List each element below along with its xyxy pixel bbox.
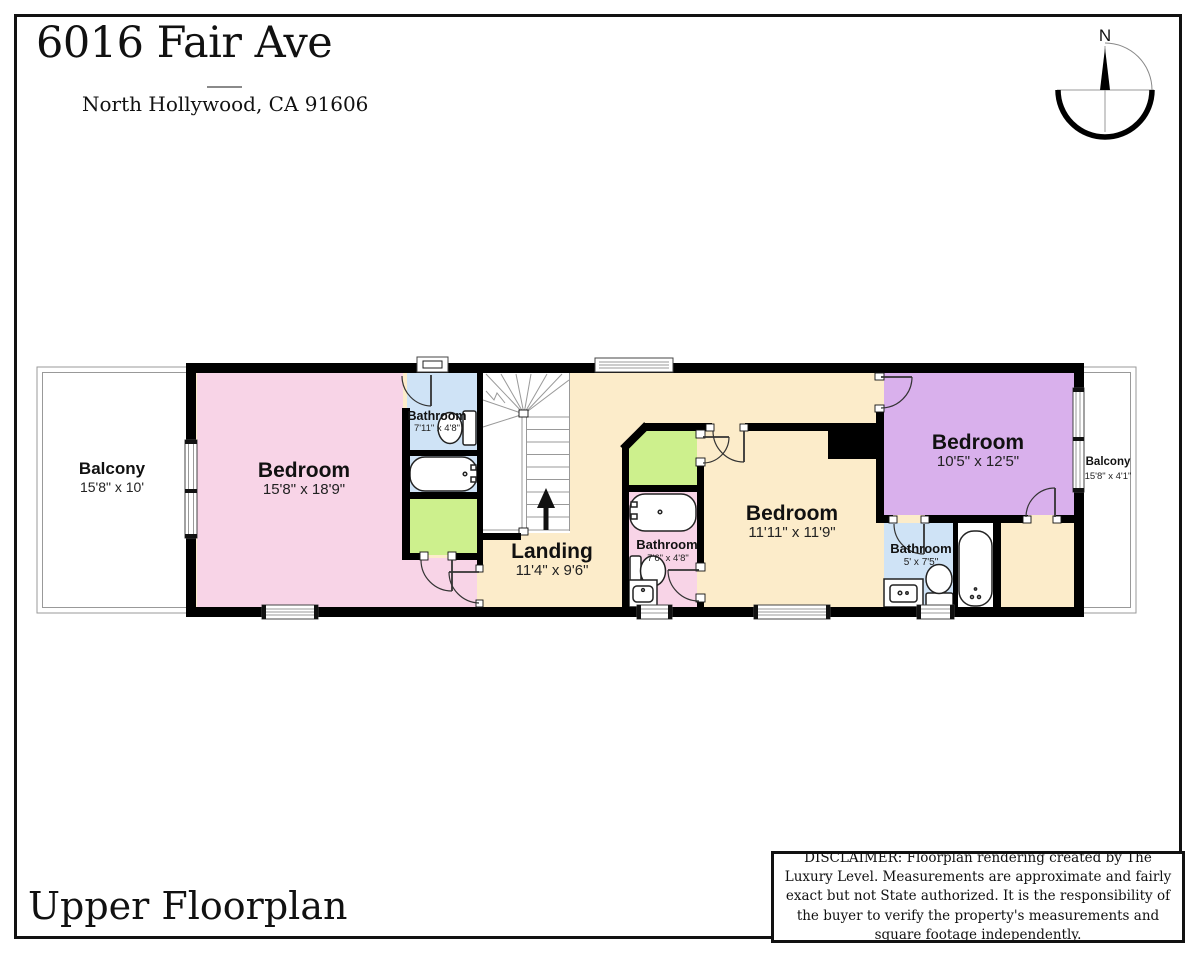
label-balcony-left: Balcony [79, 459, 146, 478]
dims-bathroom-right: 5' x 7'5" [904, 557, 939, 568]
window-bottom-2 [637, 605, 672, 619]
label-bathroom-right: Bathroom [890, 541, 951, 556]
label-bedroom-middle: Bedroom [746, 502, 838, 525]
compass-icon: N [1048, 20, 1163, 142]
vanity-bathroom-right [884, 579, 923, 607]
window-left-wall [185, 440, 197, 538]
sink-bathroom-middle [629, 580, 657, 607]
dims-bathroom-middle: 7'6" x 4'8" [647, 553, 689, 564]
window-top-wide [595, 358, 673, 372]
floorplan-page: 6016 Fair Ave North Hollywood, CA 91606 … [0, 0, 1200, 960]
dims-bedroom-right: 10'5" x 12'5" [937, 453, 1019, 470]
window-right-wall [1073, 388, 1084, 492]
label-bedroom-left: Bedroom [258, 459, 350, 482]
dims-bedroom-middle: 11'11" x 11'9" [748, 524, 835, 541]
balcony-right-outline [1079, 367, 1136, 613]
window-bottom-1 [262, 605, 318, 619]
label-bathroom-left: Bathroom [407, 409, 466, 423]
label-balcony-right: Balcony [1086, 456, 1131, 468]
disclaimer-box: DISCLAIMER: Floorplan rendering created … [771, 851, 1185, 943]
label-bathroom-middle: Bathroom [636, 537, 697, 552]
chimney-block [828, 423, 878, 459]
floorplan-drawing: Balcony 15'8" x 10' Bedroom 15'8" x 18'9… [0, 340, 1200, 640]
window-top-small [417, 357, 448, 372]
floor-label: Upper Floorplan [28, 884, 347, 928]
dims-balcony-left: 15'8" x 10' [80, 479, 144, 495]
page-subtitle: North Hollywood, CA 91606 [82, 92, 368, 116]
disclaimer-text: DISCLAIMER: Floorplan rendering created … [774, 849, 1182, 945]
toilet-bathroom-right [926, 565, 953, 607]
compass-n-label: N [1099, 26, 1111, 45]
window-bottom-4 [917, 605, 954, 619]
label-landing: Landing [511, 540, 593, 563]
dims-balcony-right: 15'8" x 4'1" [1085, 471, 1132, 482]
page-title: 6016 Fair Ave [36, 18, 332, 68]
bathtub-bathroom-left [410, 457, 477, 491]
dims-bathroom-left: 7'11" x 4'8" [414, 423, 460, 434]
label-bedroom-right: Bedroom [932, 431, 1024, 454]
bathtub-bathroom-middle [630, 494, 696, 531]
dims-bedroom-left: 15'8" x 18'9" [263, 481, 345, 498]
dims-landing: 11'4" x 9'6" [516, 562, 589, 579]
bathtub-bathroom-right [959, 531, 992, 606]
window-bottom-3 [754, 605, 830, 619]
closet-left [407, 499, 477, 555]
title-divider [207, 86, 242, 88]
